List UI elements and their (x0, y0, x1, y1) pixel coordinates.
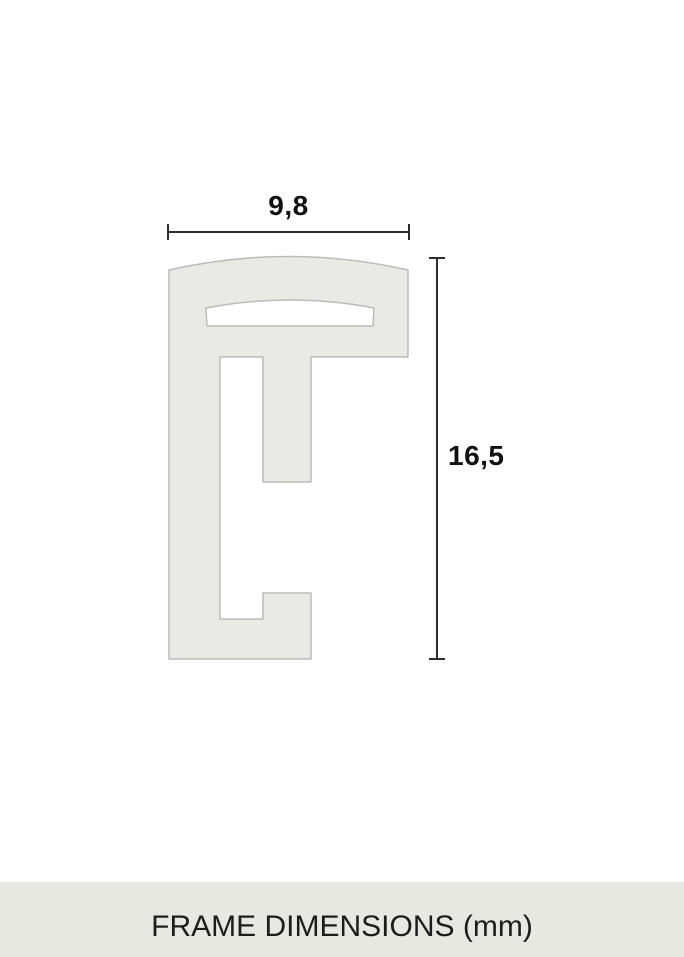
width-dimension-label: 9,8 (168, 190, 409, 222)
frame-profile-cross-section (169, 257, 408, 660)
caption-text: FRAME DIMENSIONS (mm) (0, 910, 684, 944)
frame-dimension-diagram-page: 9,8 16,5 FRAME DIMENSIONS (mm) (0, 0, 684, 957)
width-dimension-line (168, 225, 409, 239)
profile-diagram-svg (0, 0, 684, 957)
caption-bar: FRAME DIMENSIONS (mm) (0, 882, 684, 957)
height-dimension-line (430, 258, 444, 659)
height-dimension-label: 16,5 (448, 440, 505, 472)
